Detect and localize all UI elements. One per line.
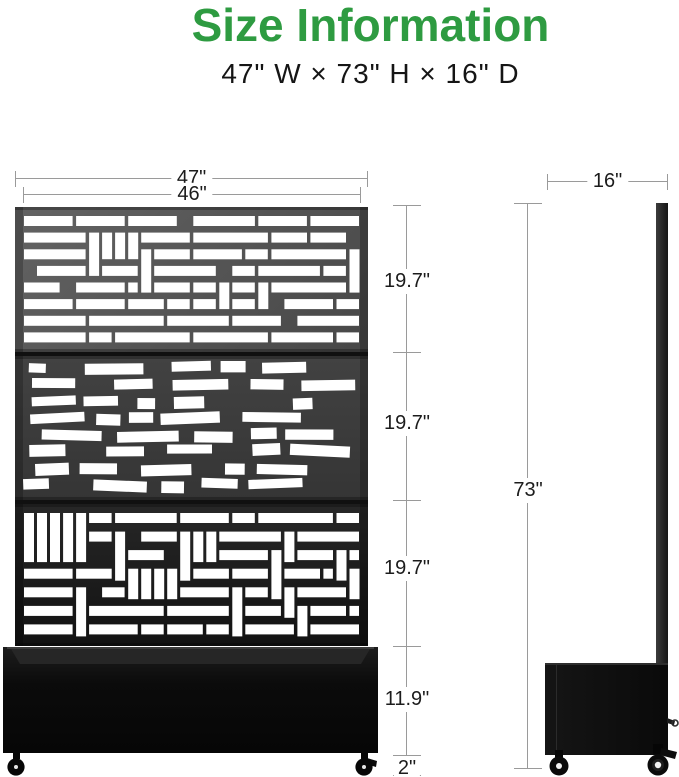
dim-panel-bottom-label: 19.7" (380, 556, 434, 581)
caster-wheel-side-left (547, 750, 571, 777)
screen-side-pole (656, 203, 668, 665)
size-information-diagram: Size Information 47" W × 73" H × 16" D 4… (0, 0, 679, 777)
planter-box-side (545, 663, 668, 755)
caster-wheel-front-right (354, 752, 380, 777)
dim-width-outer: 47" (15, 178, 368, 179)
dim-wheel-height-label: 2" (394, 756, 420, 777)
dimensions-summary: 47" W × 73" H × 16" D (62, 58, 679, 90)
caster-wheel-front-left (6, 752, 28, 777)
tick (393, 205, 421, 206)
dim-front-sections: 19.7" 19.7" 19.7" 11.9" 2" (406, 205, 407, 775)
dim-depth: 16" (547, 181, 668, 182)
tick (393, 500, 421, 501)
dim-panel-top-label: 19.7" (380, 269, 434, 294)
caster-wheel-side-right (641, 744, 679, 777)
planter-box-front (3, 647, 378, 753)
dim-depth-label: 16" (587, 170, 628, 193)
scattered-blocks-pattern-middle (15, 356, 368, 500)
page-title: Size Information (62, 0, 679, 51)
tick (393, 646, 421, 647)
privacy-screen-panel-top (15, 207, 368, 352)
header: Size Information 47" W × 73" H × 16" D (62, 0, 679, 90)
tick (514, 203, 542, 204)
dim-panel-middle-label: 19.7" (380, 411, 434, 436)
planter-opening (3, 647, 378, 667)
tick (514, 768, 542, 769)
lattice-weave-pattern-top (15, 207, 368, 352)
dim-planter-height-label: 11.9" (381, 687, 434, 712)
dim-total-height-label: 73" (509, 478, 546, 503)
tick (393, 352, 421, 353)
hook-latch-icon (666, 715, 679, 731)
privacy-screen-panel-middle (15, 356, 368, 500)
privacy-screen-panel-bottom (15, 504, 368, 646)
dim-total-height: 73" (527, 203, 528, 768)
dim-width-inner: 46" (23, 194, 361, 195)
dim-width-inner-label: 46" (171, 183, 212, 206)
lattice-weave-pattern-bottom (15, 504, 368, 646)
